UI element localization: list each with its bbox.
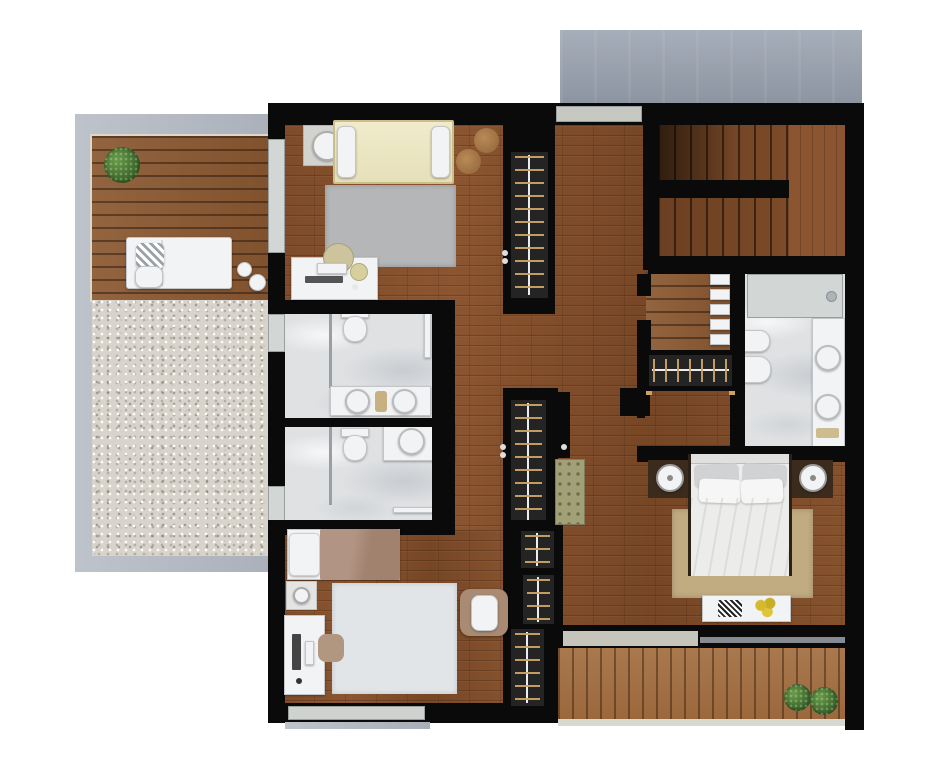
pillow — [337, 126, 356, 178]
bedroom-1-south-wall — [268, 300, 455, 314]
towel-stack — [710, 304, 730, 315]
hall-wall-stub — [637, 274, 651, 296]
balcony-door-sill — [560, 631, 698, 646]
speaker — [656, 464, 684, 492]
terrace-gravel-area — [92, 300, 273, 556]
wardrobe-knob — [502, 250, 508, 256]
stair-mid-wall — [655, 180, 789, 198]
towel-stack — [710, 334, 730, 345]
wardrobe-knob — [502, 258, 508, 264]
toilet — [744, 356, 771, 383]
tufted-bench — [555, 459, 585, 525]
keyboard — [305, 641, 314, 665]
desk-chair — [318, 634, 344, 662]
pillow — [289, 533, 320, 576]
stair-down-shadow — [658, 123, 788, 180]
monitor — [305, 276, 343, 283]
towel-stack — [710, 274, 730, 285]
pillow — [431, 126, 450, 178]
clothes-rack — [649, 355, 732, 386]
towel-stack — [710, 319, 730, 330]
mouse — [352, 284, 358, 290]
armchair-cushion — [471, 595, 498, 631]
bathroom-2-window — [268, 486, 285, 524]
blanket — [320, 529, 400, 580]
balcony-sliding-glass — [700, 637, 845, 643]
light-rug — [332, 583, 457, 694]
balcony-east-wall — [845, 645, 864, 730]
duvet — [691, 498, 789, 576]
shower-partition-glass — [329, 304, 332, 388]
paper-pad — [317, 263, 347, 274]
mouse — [296, 678, 302, 684]
wardrobe — [511, 152, 548, 298]
table-lamp — [293, 587, 310, 604]
white-pillow — [135, 266, 163, 288]
wood-tray — [375, 391, 387, 412]
bedroom-2-window — [288, 706, 425, 720]
wardrobe — [521, 531, 554, 568]
side-table — [237, 262, 252, 277]
wardrobe — [511, 400, 546, 524]
wall-right — [845, 103, 864, 655]
stair-landing — [788, 123, 845, 256]
towel-stack — [710, 289, 730, 300]
sink-basin — [345, 389, 370, 414]
potted-plant — [104, 147, 140, 183]
sink-basin — [392, 389, 417, 414]
bathroom-divider-wall — [283, 418, 455, 427]
headboard — [691, 454, 789, 464]
bidet — [744, 330, 770, 352]
shower-fixture — [826, 291, 837, 302]
potted-plant — [784, 684, 811, 711]
flowers — [753, 597, 779, 618]
monitor — [292, 634, 301, 670]
door-leaf — [637, 390, 645, 418]
stair-west-wall — [643, 115, 659, 270]
side-table — [249, 274, 266, 291]
bathroom-1-window — [268, 314, 285, 352]
sink-basin — [398, 428, 425, 455]
pouf — [456, 149, 481, 174]
toilet-bowl — [343, 435, 367, 461]
wardrobe-knob — [500, 444, 506, 450]
wardrobe-knob — [500, 452, 506, 458]
sink-basin — [815, 345, 841, 371]
sink-basin — [815, 394, 841, 420]
balcony-edge — [558, 719, 846, 726]
wardrobe — [511, 629, 544, 706]
bath-mat — [816, 428, 839, 438]
rack-foot — [646, 391, 652, 395]
pouf — [474, 128, 499, 153]
stair-south-wall — [648, 256, 845, 274]
rack-foot — [729, 391, 735, 395]
floor-plan-canvas — [0, 0, 940, 768]
hallway-top-window — [556, 106, 642, 122]
speaker — [799, 464, 827, 492]
door-knob — [561, 444, 567, 450]
bedroom-2-window-sill — [285, 722, 430, 729]
decor-object — [718, 600, 742, 617]
master-bed — [688, 454, 792, 576]
shower-partition-glass — [329, 427, 332, 505]
desk-lamp — [350, 263, 368, 281]
potted-plant — [810, 687, 838, 715]
stair-lower-flight — [658, 198, 788, 256]
wardrobe — [523, 575, 554, 624]
bathroom-1-door-leaf — [424, 312, 431, 358]
roof-slab — [560, 30, 862, 110]
bedroom-1-terrace-door — [268, 139, 285, 253]
toilet-bowl — [343, 316, 367, 342]
